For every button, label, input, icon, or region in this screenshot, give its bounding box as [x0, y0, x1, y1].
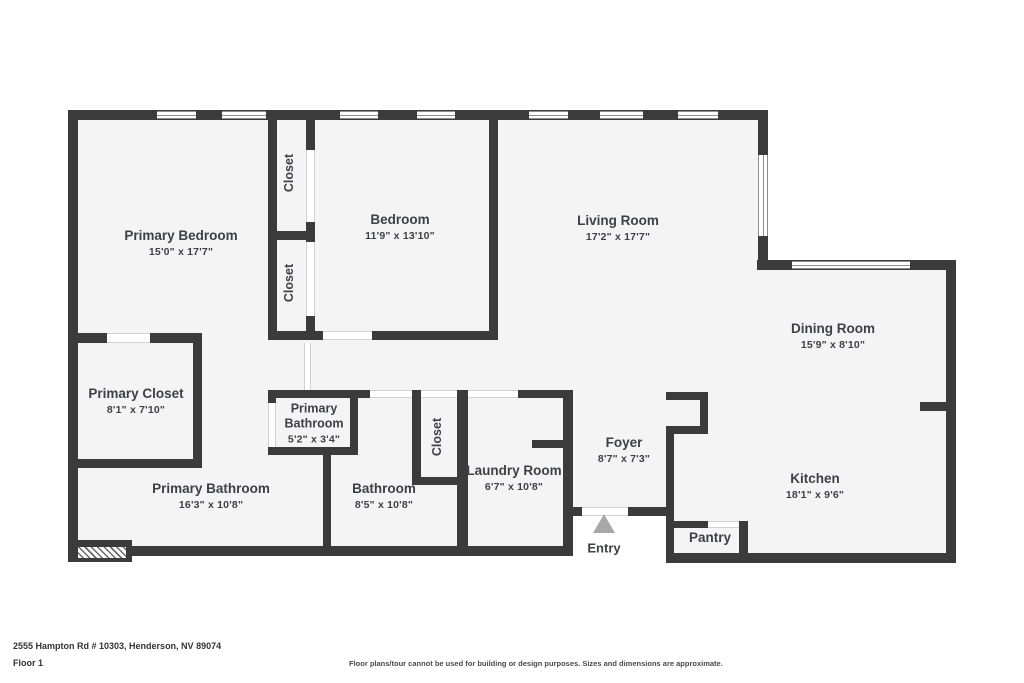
floor-area-kitchen-sliver — [674, 546, 768, 553]
room-name: Bathroom — [352, 481, 416, 497]
closet-label-hall: Closet — [430, 418, 444, 456]
window — [792, 261, 910, 269]
room-dims: 8'1" x 7'10" — [88, 404, 183, 416]
room-dims: 6'7" x 10'8" — [466, 481, 561, 493]
window — [157, 111, 196, 119]
floor-plan: Primary Bedroom 15'0" x 17'7" Bedroom 11… — [0, 0, 1024, 683]
wall-dining-kitchen-stub — [920, 402, 948, 411]
room-label-bedroom: Bedroom 11'9" x 13'10" — [365, 212, 435, 242]
wall-primary-closet-right — [193, 333, 202, 468]
room-dims: 18'1" x 9'6" — [786, 489, 844, 501]
window — [600, 111, 643, 119]
entry-label: Entry — [587, 541, 620, 556]
wall-bath-divider — [323, 455, 331, 546]
door-opening-primary-closet — [107, 333, 150, 343]
room-dims: 16'3" x 10'8" — [152, 499, 270, 511]
room-dims: 15'9" x 8'10" — [791, 339, 875, 351]
room-dims: 17'2" x 17'7" — [577, 231, 659, 243]
hatch-area — [68, 540, 132, 562]
entry-arrow-icon — [593, 514, 615, 533]
door-opening-closet-bottom — [306, 242, 315, 316]
disclaimer-text: Floor plans/tour cannot be used for buil… — [349, 659, 723, 668]
wall-bottom-left — [68, 546, 573, 556]
wall-living-right-upper — [758, 110, 768, 155]
room-name: Living Room — [577, 213, 659, 229]
room-label-dining-room: Dining Room 15'9" x 8'10" — [791, 321, 875, 351]
room-label-living-room: Living Room 17'2" x 17'7" — [577, 213, 659, 243]
room-label-foyer: Foyer 8'7" x 7'3" — [598, 435, 650, 465]
door-opening-hallway — [304, 343, 311, 390]
room-name: Bedroom — [365, 212, 435, 228]
wall-bedroom-bottom — [268, 331, 498, 340]
door-opening-pantry — [708, 521, 739, 528]
room-label-primary-bathroom: Primary Bathroom 16'3" x 10'8" — [152, 481, 270, 511]
room-label-primary-closet: Primary Closet 8'1" x 7'10" — [88, 386, 183, 416]
closet-label-top: Closet — [282, 154, 296, 192]
room-label-pantry: Pantry — [689, 530, 731, 546]
wall-kitchen-left — [666, 426, 674, 556]
floor-number-text: Floor 1 — [13, 658, 43, 668]
window — [529, 111, 568, 119]
door-opening-laundry — [468, 390, 518, 398]
room-dims: 15'0" x 17'7" — [124, 246, 237, 258]
wall-laundry-stub — [532, 440, 563, 448]
window — [222, 111, 266, 119]
room-label-primary-bathroom-wc: Primary Bathroom 5'2" x 3'4" — [271, 401, 357, 445]
room-name: Laundry Room — [466, 463, 561, 479]
room-name: Dining Room — [791, 321, 875, 337]
room-name: Primary Bedroom — [124, 228, 237, 244]
door-opening-hall-closet — [421, 390, 457, 398]
room-label-primary-bedroom: Primary Bedroom 15'0" x 17'7" — [124, 228, 237, 258]
room-name: Kitchen — [786, 471, 844, 487]
wall-bedroom-right — [489, 110, 498, 340]
room-dims: 5'2" x 3'4" — [271, 433, 357, 445]
window — [678, 111, 718, 119]
room-name: Primary Bathroom — [271, 401, 357, 431]
door-opening-closet-top — [306, 150, 315, 222]
room-label-laundry-room: Laundry Room 6'7" x 10'8" — [466, 463, 561, 493]
room-name: Primary Bathroom — [152, 481, 270, 497]
room-dims: 11'9" x 13'10" — [365, 230, 435, 242]
wall-primary-closet-bottom — [68, 459, 202, 468]
room-label-bathroom: Bathroom 8'5" x 10'8" — [352, 481, 416, 511]
closet-label-bottom: Closet — [282, 264, 296, 302]
door-opening-bathroom — [370, 390, 412, 398]
window — [340, 111, 378, 119]
door-opening-bedroom — [323, 331, 372, 340]
wall-hall-closet-left — [412, 390, 421, 485]
window — [417, 111, 455, 119]
wall-kitchen-bottom — [666, 553, 956, 563]
wall-right — [946, 260, 956, 563]
wall-closet-column-left — [268, 110, 277, 340]
address-text: 2555 Hampton Rd # 10303, Henderson, NV 8… — [13, 641, 221, 651]
window — [758, 155, 768, 236]
wall-wc-bottom — [268, 447, 358, 455]
wall-laundry-right — [563, 390, 573, 546]
wall-closet-divider — [268, 231, 315, 240]
room-label-kitchen: Kitchen 18'1" x 9'6" — [786, 471, 844, 501]
wall-pantry-right — [739, 521, 748, 563]
room-name: Pantry — [689, 530, 731, 546]
room-name: Primary Closet — [88, 386, 183, 402]
room-dims: 8'5" x 10'8" — [352, 499, 416, 511]
room-dims: 8'7" x 7'3" — [598, 453, 650, 465]
room-name: Foyer — [598, 435, 650, 451]
